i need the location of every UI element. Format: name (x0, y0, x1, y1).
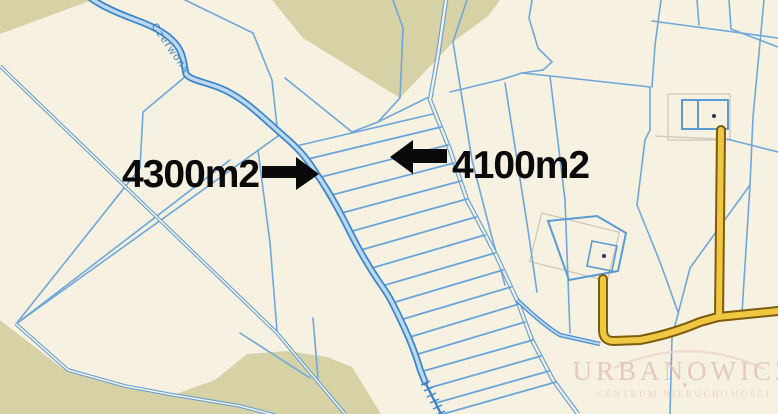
building-dot (602, 254, 606, 258)
map-viewport[interactable]: Czerwona URBANOWICZ CENTRUM NIERUCHOMOŚC… (0, 0, 778, 414)
watermark-subtitle: CENTRUM NIERUCHOMOŚCI (597, 388, 771, 400)
building-dot (712, 114, 716, 118)
map-canvas[interactable]: Czerwona URBANOWICZ CENTRUM NIERUCHOMOŚC… (0, 0, 778, 414)
area-label-4300: 4300m2 (122, 153, 259, 196)
watermark-title: URBANOWICZ (573, 356, 778, 386)
watermark: URBANOWICZ CENTRUM NIERUCHOMOŚCI (573, 351, 778, 400)
area-label-4100: 4100m2 (452, 144, 589, 187)
